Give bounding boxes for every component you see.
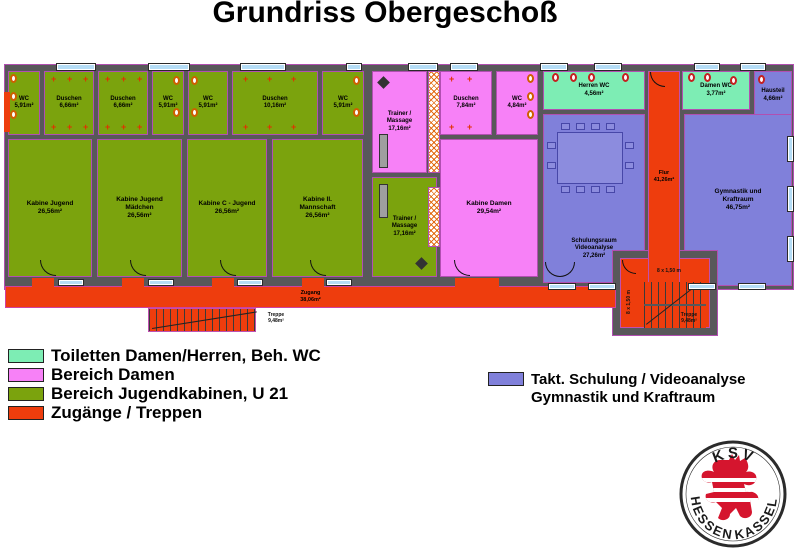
toilet-icon xyxy=(353,76,360,85)
page: { "title": "Grundriss Obergeschoß", "roo… xyxy=(0,0,800,556)
room-label: Herren WC xyxy=(578,83,609,91)
shower-icon: + xyxy=(137,75,142,84)
room-kabine-jugend-maedchen: Kabine Jugend Mädchen26,56m² xyxy=(97,139,182,277)
room-area: 26,56m² xyxy=(285,212,351,220)
chair-icon xyxy=(561,186,570,193)
toilet-icon xyxy=(527,74,534,83)
room-label: Kabine C - Jugend xyxy=(198,200,255,208)
stair-annotation: 8 x 1,50 m xyxy=(650,268,688,274)
room-hausteil: Hausteil4,66m² xyxy=(754,71,792,120)
window xyxy=(56,63,96,71)
room-kabine-c-jugend: Kabine C - Jugend26,56m² xyxy=(187,139,267,277)
room-duschen-damen: ++ Duschen7,84m² ++ xyxy=(440,71,492,135)
room-area: 7,84m² xyxy=(453,103,478,111)
toilet-icon xyxy=(191,76,198,85)
door-opening xyxy=(122,278,144,287)
room-area: 5,91m² xyxy=(14,103,33,111)
room-duschen-gross: +++ Duschen10,16m² +++ xyxy=(232,71,318,135)
toilet-icon xyxy=(173,76,180,85)
room-area: 9,48m² xyxy=(681,318,697,324)
room-label: Kabine Jugend xyxy=(27,200,74,208)
shower-icon: + xyxy=(267,75,272,84)
window xyxy=(326,279,352,286)
massage-bench-icon xyxy=(379,184,388,218)
room-area: 3,77m² xyxy=(700,91,732,99)
window xyxy=(694,63,720,71)
shower-icon: + xyxy=(121,123,126,132)
shower-icon: + xyxy=(449,123,454,132)
toilet-icon xyxy=(704,73,711,82)
window xyxy=(450,63,478,71)
window xyxy=(787,236,794,262)
room-area: 6,66m² xyxy=(110,103,135,111)
room-area: 6,66m² xyxy=(56,103,81,111)
corridor-flur: Flur41,26m² xyxy=(648,71,680,283)
room-label: WC xyxy=(158,96,177,104)
toilet-icon xyxy=(173,108,180,117)
legend-item-jugend: Bereich Jugendkabinen, U 21 xyxy=(8,386,288,402)
legend-label: Toiletten Damen/Herren, Beh. WC xyxy=(51,346,321,366)
window xyxy=(148,63,190,71)
legend-label: Bereich Damen xyxy=(51,365,175,385)
room-kabine-damen: Kabine Damen29,54m² xyxy=(440,139,538,277)
corridor-zugang: Zugang38,06m² xyxy=(5,286,616,308)
window xyxy=(588,283,616,290)
room-label: Gymnastik und Kraftraum xyxy=(703,188,773,204)
room-label: Zugang xyxy=(300,290,321,297)
chair-icon xyxy=(576,123,585,130)
room-area: 4,56m² xyxy=(578,91,609,99)
legend-label: Bereich Jugendkabinen, U 21 xyxy=(51,384,288,404)
toilet-icon xyxy=(622,73,629,82)
toilet-icon xyxy=(552,73,559,82)
room-trainer-massage-1: Trainer / Massage17,16m² xyxy=(372,71,427,173)
room-label: Duschen xyxy=(110,96,135,104)
room-area: 38,06m² xyxy=(300,297,321,304)
window xyxy=(688,283,716,290)
shower-icon: + xyxy=(67,123,72,132)
room-kabine-jugend: Kabine Jugend26,56m² xyxy=(8,139,92,277)
chair-icon xyxy=(576,186,585,193)
shower-icon: + xyxy=(83,123,88,132)
window xyxy=(594,63,622,71)
shower-icon: + xyxy=(67,75,72,84)
room-area: 9,48m² xyxy=(268,318,284,324)
shower-icon: + xyxy=(105,75,110,84)
room-label: Duschen xyxy=(453,96,478,104)
legend-item-damen: Bereich Damen xyxy=(8,367,175,383)
toilet-icon xyxy=(10,110,17,119)
logo-svg: KSV HESSEN KASSEL xyxy=(672,434,794,554)
legend-swatch-pink xyxy=(8,368,44,382)
page-title: Grundriss Obergeschoß xyxy=(0,0,770,30)
room-area: 17,16m² xyxy=(381,231,429,239)
window xyxy=(237,279,263,286)
room-kabine-2-mannschaft: Kabine II. Mannschaft26,56m² xyxy=(272,139,363,277)
shower-icon: + xyxy=(467,123,472,132)
room-label: WC xyxy=(198,96,217,104)
legend-item-gymnastik: Gymnastik und Kraftraum xyxy=(531,389,715,405)
legend-swatch-mint xyxy=(8,349,44,363)
legend-label: Zugänge / Treppen xyxy=(51,403,202,423)
window xyxy=(240,63,286,71)
massage-bench-icon xyxy=(379,134,388,168)
shower-icon: + xyxy=(51,123,56,132)
shower-icon: + xyxy=(291,75,296,84)
ksv-hessen-kassel-logo: KSV HESSEN KASSEL xyxy=(672,434,794,559)
room-duschen: +++ Duschen6,66m² +++ xyxy=(98,71,148,135)
legend-item-schulung: Takt. Schulung / Videoanalyse xyxy=(488,371,746,387)
room-label: Kabine Damen xyxy=(466,200,511,208)
legend-swatch-orange xyxy=(8,406,44,420)
shower-icon: + xyxy=(243,123,248,132)
desk-icon xyxy=(415,257,428,270)
toilet-icon xyxy=(588,73,595,82)
toilet-icon xyxy=(527,92,534,101)
chair-icon xyxy=(547,142,556,149)
legend-swatch-olive xyxy=(8,387,44,401)
chair-icon xyxy=(625,162,634,169)
room-area: 41,26m² xyxy=(654,177,675,184)
room-label: Duschen xyxy=(56,96,81,104)
window xyxy=(58,279,84,286)
shower-icon: + xyxy=(467,75,472,84)
stair-divider xyxy=(644,304,706,306)
room-area: 4,84m² xyxy=(507,103,526,111)
door-opening xyxy=(212,278,234,287)
toilet-icon xyxy=(10,74,17,83)
room-area: 4,66m² xyxy=(761,96,784,104)
toilet-icon xyxy=(730,76,737,85)
room-label: Damen WC xyxy=(700,83,732,91)
toilet-icon xyxy=(688,73,695,82)
room-area: 26,56m² xyxy=(27,208,74,216)
chair-icon xyxy=(606,123,615,130)
room-area: 5,91m² xyxy=(198,103,217,111)
room-label: Duschen xyxy=(262,96,287,104)
window xyxy=(787,186,794,212)
radiator-icon xyxy=(428,187,440,247)
toilet-icon xyxy=(570,73,577,82)
window xyxy=(540,63,568,71)
room-area: 29,54m² xyxy=(466,208,511,216)
door-opening xyxy=(455,278,499,288)
chair-icon xyxy=(561,123,570,130)
chair-icon xyxy=(591,123,600,130)
room-label: Trainer / Massage xyxy=(381,216,429,231)
room-label: Trainer / Massage xyxy=(378,111,422,126)
window xyxy=(740,63,766,71)
legend-label: Gymnastik und Kraftraum xyxy=(531,389,715,406)
stair-label-right: Treppe 9,48m² xyxy=(670,312,708,324)
floor-plan: WC5,91m² +++ Duschen6,66m² +++ +++ Dusch… xyxy=(4,62,796,340)
shower-icon: + xyxy=(137,123,142,132)
shower-icon: + xyxy=(83,75,88,84)
door-opening xyxy=(4,92,10,132)
shower-icon: + xyxy=(51,75,56,84)
door-opening xyxy=(32,278,54,287)
room-label: Kabine Jugend Mädchen xyxy=(110,196,170,212)
shower-icon: + xyxy=(267,123,272,132)
legend-item-toiletten: Toiletten Damen/Herren, Beh. WC xyxy=(8,348,321,364)
room-label: Kabine II. Mannschaft xyxy=(285,196,351,212)
toilet-icon xyxy=(353,108,360,117)
chair-icon xyxy=(591,186,600,193)
room-area: 46,75m² xyxy=(703,204,773,212)
desk-icon xyxy=(377,76,390,89)
room-label: WC xyxy=(333,96,352,104)
legend-item-zugaenge: Zugänge / Treppen xyxy=(8,405,202,421)
room-area: 5,91m² xyxy=(333,103,352,111)
window xyxy=(548,283,576,290)
room-area: 10,16m² xyxy=(262,103,287,111)
door-opening xyxy=(302,278,324,287)
window xyxy=(408,63,438,71)
room-duschen: +++ Duschen6,66m² +++ xyxy=(44,71,94,135)
chair-icon xyxy=(606,186,615,193)
chair-icon xyxy=(625,142,634,149)
room-label: Flur xyxy=(654,170,675,177)
window xyxy=(346,63,362,71)
window xyxy=(787,136,794,162)
shower-icon: + xyxy=(449,75,454,84)
stair-label-left: Treppe 9,48m² xyxy=(256,312,296,324)
room-area: 26,56m² xyxy=(198,208,255,216)
shower-icon: + xyxy=(121,75,126,84)
window xyxy=(148,279,174,286)
shower-icon: + xyxy=(291,123,296,132)
window xyxy=(738,283,766,290)
legend-swatch-purple xyxy=(488,372,524,386)
room-area: 26,56m² xyxy=(110,212,170,220)
radiator-icon xyxy=(428,71,440,173)
boiler-icon xyxy=(758,75,765,84)
conference-table-icon xyxy=(557,132,623,184)
room-label: Hausteil xyxy=(761,88,784,96)
shower-icon: + xyxy=(243,75,248,84)
room-label: WC xyxy=(14,96,33,104)
toilet-icon xyxy=(191,108,198,117)
legend-label: Takt. Schulung / Videoanalyse xyxy=(531,371,746,388)
chair-icon xyxy=(547,162,556,169)
shower-icon: + xyxy=(105,123,110,132)
toilet-icon xyxy=(527,110,534,119)
room-label: WC xyxy=(507,96,526,104)
toilet-icon xyxy=(10,92,17,101)
stair-annotation-vertical: 8 x 1,50 m xyxy=(626,284,632,320)
room-area: 17,16m² xyxy=(378,126,422,134)
